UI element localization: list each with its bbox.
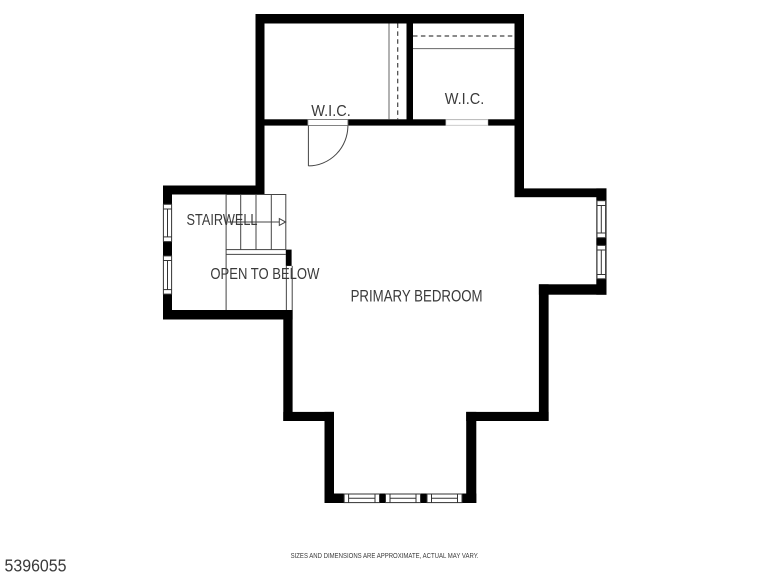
- svg-text:W.I.C.: W.I.C.: [445, 91, 485, 108]
- svg-text:W.I.C.: W.I.C.: [311, 103, 351, 120]
- svg-text:PRIMARY BEDROOM: PRIMARY BEDROOM: [351, 287, 483, 306]
- svg-text:SIZES AND DIMENSIONS ARE APPRO: SIZES AND DIMENSIONS ARE APPROXIMATE, AC…: [291, 551, 479, 560]
- svg-text:OPEN TO BELOW: OPEN TO BELOW: [210, 266, 320, 283]
- svg-text:5396055: 5396055: [5, 556, 67, 576]
- svg-text:STAIRWELL: STAIRWELL: [187, 212, 258, 229]
